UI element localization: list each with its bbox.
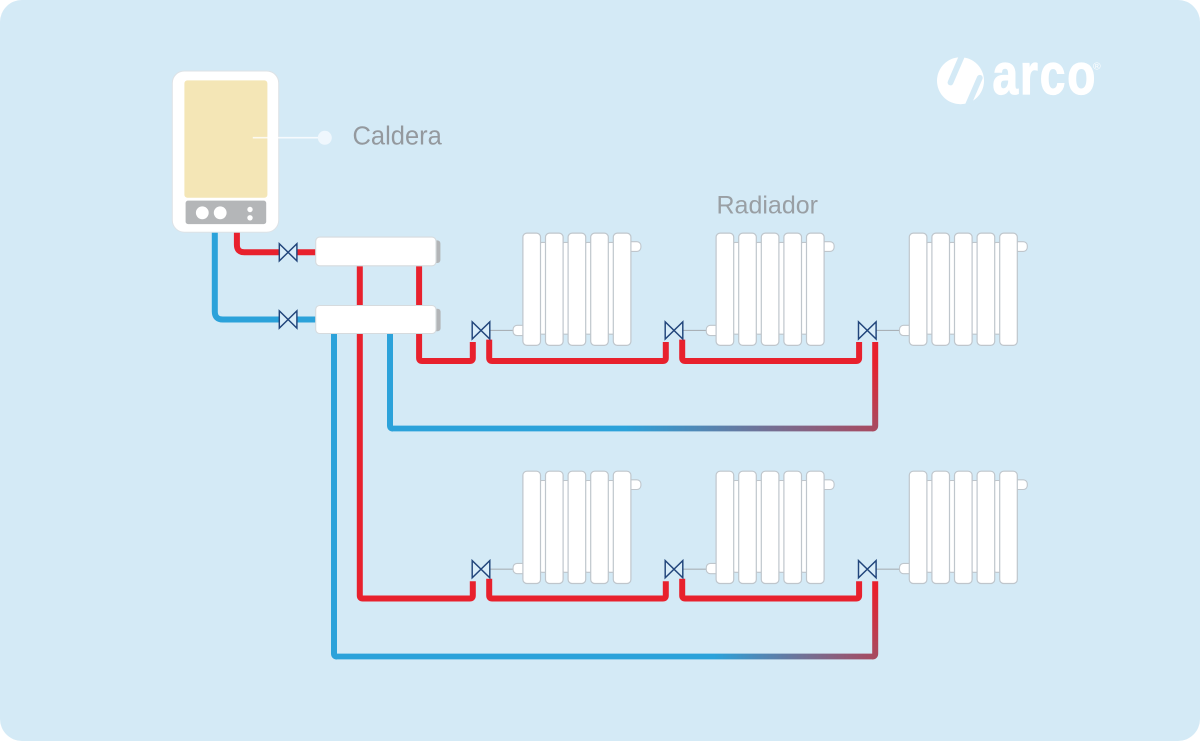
- svg-text:®: ®: [1093, 61, 1101, 73]
- svg-text:Radiador: Radiador: [717, 192, 818, 220]
- svg-text:Caldera: Caldera: [353, 123, 443, 151]
- svg-text:arco: arco: [993, 43, 1098, 107]
